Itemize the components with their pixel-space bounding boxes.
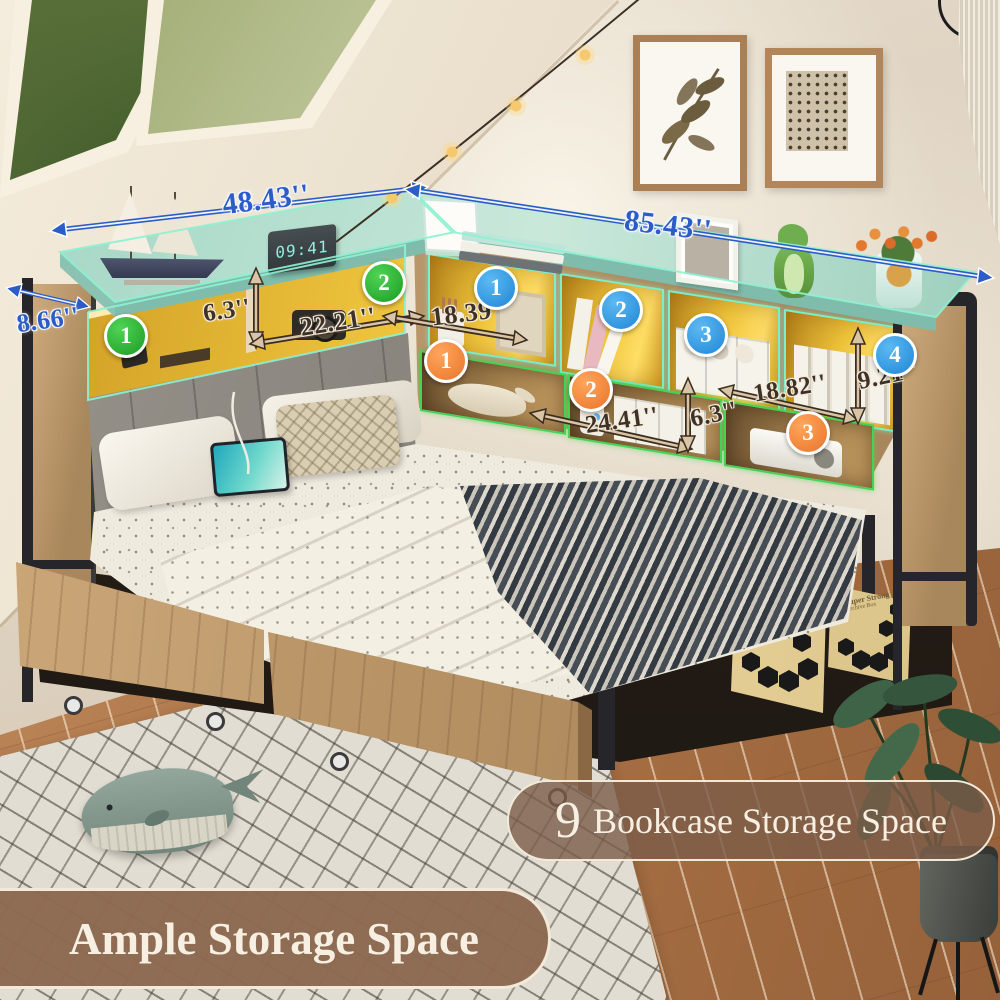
picture-frame-coral	[765, 48, 883, 188]
ship-hull	[100, 258, 224, 278]
storage-count: 9	[555, 795, 581, 847]
whale-plush	[76, 749, 268, 887]
coral-art	[786, 71, 848, 151]
drawer-wheel	[64, 696, 83, 715]
badge-blue-3: 3	[684, 313, 728, 357]
ample-storage-banner: Ample Storage Space	[0, 888, 551, 989]
drawer-wheel	[206, 712, 225, 731]
badge-blue-1: 1	[474, 266, 518, 310]
leaf-art	[647, 49, 733, 177]
ample-label: Ample Storage Space	[69, 913, 479, 965]
ship-model	[96, 186, 236, 296]
storage-label: Bookcase Storage Space	[593, 800, 947, 842]
badge-green-1: 1	[104, 314, 148, 358]
picture-frame-leaf	[633, 35, 747, 191]
pot-leg	[918, 939, 938, 996]
pot-leg	[956, 942, 960, 1000]
tablet	[210, 437, 290, 497]
flowers	[850, 218, 946, 264]
knit-pillow	[275, 394, 402, 478]
ship-stand	[124, 280, 200, 285]
right-frame-foot	[893, 572, 977, 581]
badge-orange-2: 2	[569, 368, 613, 412]
ship-sail-1	[108, 192, 152, 254]
ship-sail-2	[152, 198, 198, 256]
badge-orange-3: 3	[786, 411, 830, 455]
dino-belly	[784, 254, 804, 294]
product-image: Super Strong Archive Box Super Strong Ar…	[0, 0, 1000, 1000]
bunny-plush	[448, 379, 526, 422]
badge-blue-4: 4	[873, 333, 917, 377]
badge-orange-1: 1	[424, 339, 468, 383]
tablet-screen	[213, 440, 287, 494]
clock-time: 09:41	[275, 236, 328, 262]
pot-leg	[980, 937, 1000, 994]
dino-plush	[770, 224, 820, 304]
bookcase-storage-banner: 9 Bookcase Storage Space	[507, 780, 995, 861]
digital-clock: 09:41	[268, 224, 336, 274]
badge-blue-2: 2	[599, 288, 643, 332]
badge-green-2: 2	[362, 261, 406, 305]
drawer-wheel	[330, 752, 349, 771]
